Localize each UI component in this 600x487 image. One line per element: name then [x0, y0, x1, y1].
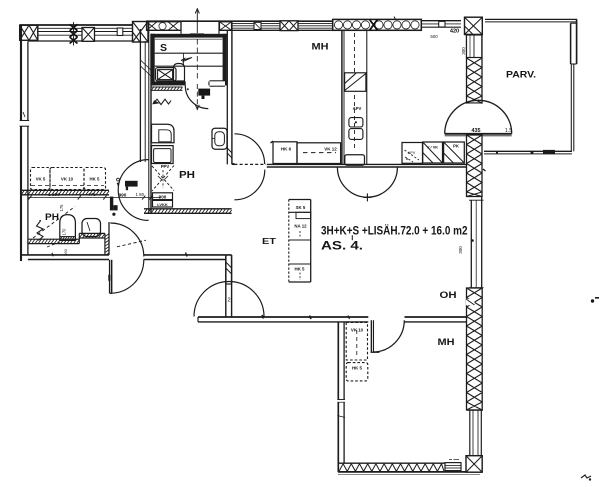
svg-text:HK 5: HK 5: [294, 267, 305, 272]
svg-text:VK 5: VK 5: [36, 176, 46, 181]
svg-text:SK 5: SK 5: [296, 205, 306, 210]
svg-text:VK 10: VK 10: [351, 327, 364, 332]
svg-text:175: 175: [59, 204, 64, 212]
svg-text:3H+K+S +LISÄH.72.0 + 16.0 m2: 3H+K+S +LISÄH.72.0 + 16.0 m2: [321, 224, 468, 237]
svg-text:2: 2: [227, 298, 230, 304]
svg-text:LVKK: LVKK: [157, 202, 168, 207]
svg-text:PH: PH: [179, 169, 195, 181]
svg-text:NA 12: NA 12: [294, 224, 307, 229]
svg-text:APV: APV: [408, 151, 416, 155]
svg-text:APV: APV: [353, 106, 362, 111]
svg-text:360: 360: [63, 248, 68, 255]
svg-text:1 80: 1 80: [136, 192, 145, 197]
svg-text:435: 435: [472, 128, 481, 134]
svg-text:ET: ET: [262, 236, 277, 246]
svg-text:900: 900: [159, 195, 167, 200]
svg-text:HK 6: HK 6: [281, 146, 292, 151]
svg-text:S: S: [160, 42, 167, 54]
svg-text:PPV: PPV: [161, 164, 170, 169]
svg-text:PK: PK: [453, 144, 459, 149]
svg-text:V / VK: V / VK: [427, 145, 438, 150]
svg-text:AS. 4.: AS. 4.: [321, 240, 363, 252]
svg-text:MH: MH: [438, 337, 455, 347]
svg-text:1.5: 1.5: [505, 128, 512, 134]
svg-text:300: 300: [461, 47, 466, 55]
svg-text:PARV.: PARV.: [506, 70, 536, 80]
svg-text:300: 300: [458, 246, 463, 254]
svg-text:OH: OH: [440, 290, 457, 300]
svg-text:VK 10: VK 10: [61, 176, 74, 181]
svg-text:420: 420: [450, 29, 459, 35]
svg-text:HK 5: HK 5: [352, 366, 363, 371]
svg-text:MH: MH: [312, 42, 329, 52]
svg-text:VK 12: VK 12: [324, 146, 337, 151]
svg-text:500: 500: [430, 34, 438, 39]
svg-text:990: 990: [119, 192, 127, 197]
svg-text:170: 170: [62, 228, 67, 236]
svg-text:HK 5: HK 5: [89, 176, 100, 181]
